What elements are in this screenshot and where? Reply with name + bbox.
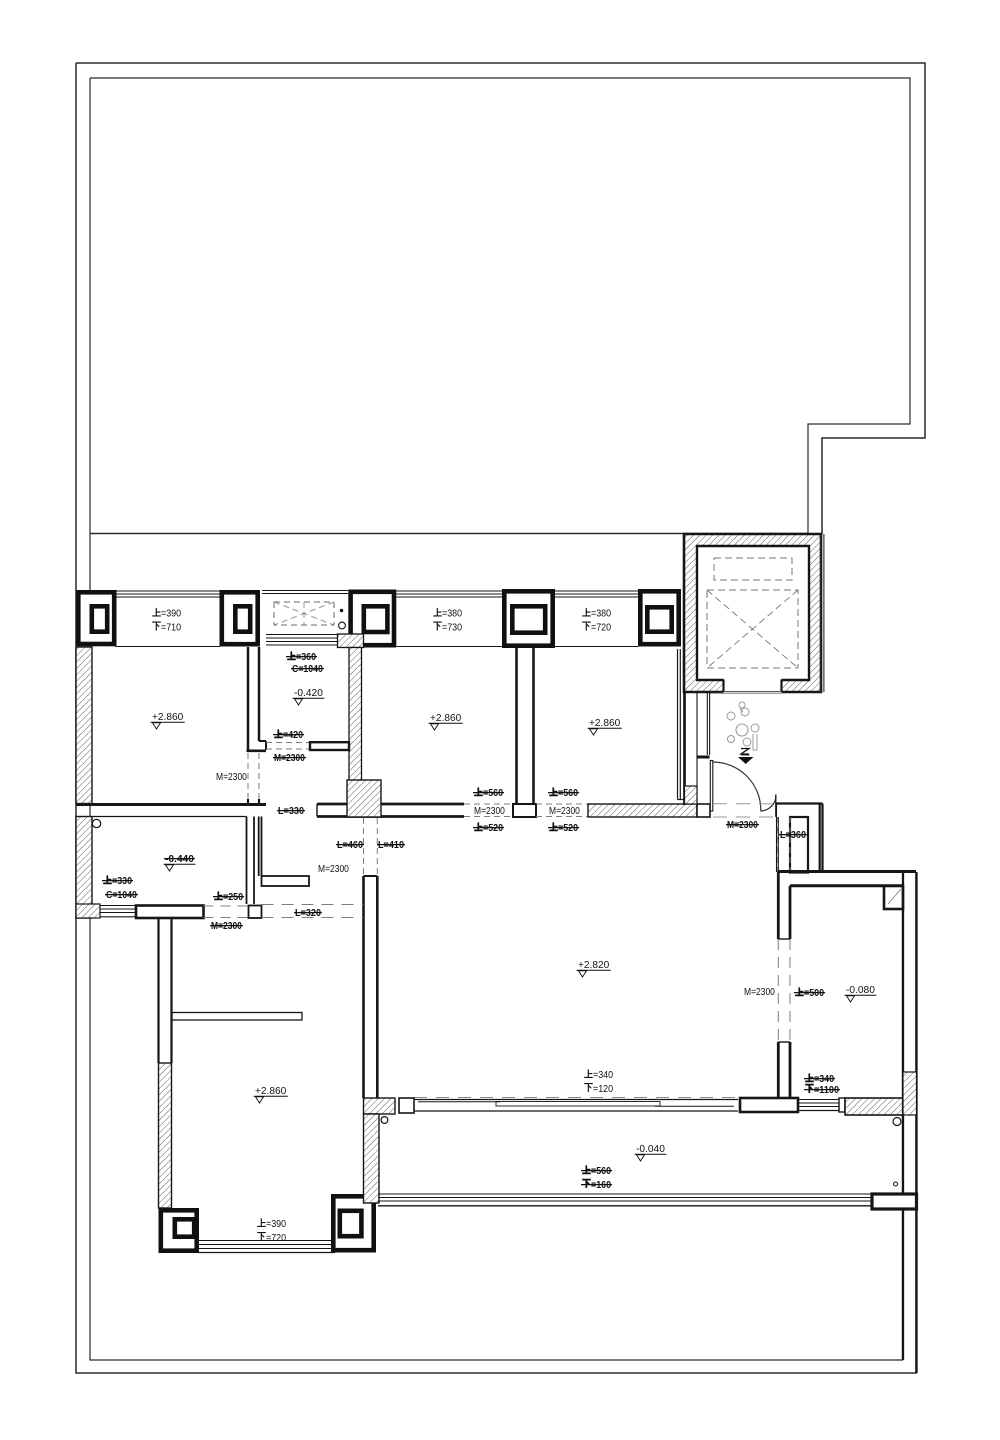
svg-text:=390: =390 (161, 608, 181, 620)
svg-text:=710: =710 (161, 622, 181, 634)
svg-text:M=2300: M=2300 (216, 771, 247, 783)
svg-text:=730: =730 (442, 622, 462, 634)
svg-text:-0.420: -0.420 (294, 687, 323, 699)
svg-text:+2.860: +2.860 (430, 712, 461, 724)
svg-text:+2.860: +2.860 (152, 711, 183, 723)
svg-text:=390: =390 (266, 1218, 286, 1230)
svg-text:M=2300: M=2300 (744, 986, 775, 998)
svg-text:-0.080: -0.080 (846, 984, 875, 996)
svg-text:=380: =380 (442, 608, 462, 620)
svg-text:+2.860: +2.860 (255, 1085, 286, 1097)
svg-text:=720: =720 (591, 622, 611, 634)
svg-text:M=2300: M=2300 (549, 805, 580, 817)
svg-text:M=2300: M=2300 (318, 863, 349, 875)
svg-text:M=2300: M=2300 (474, 805, 505, 817)
svg-text:+2.820: +2.820 (578, 959, 609, 971)
svg-text:=340: =340 (593, 1069, 613, 1081)
svg-text:+2.860: +2.860 (589, 717, 620, 729)
svg-text:=120: =120 (593, 1083, 613, 1095)
svg-text:=720: =720 (266, 1232, 286, 1244)
svg-text:-0.040: -0.040 (636, 1143, 665, 1155)
svg-text:=380: =380 (591, 608, 611, 620)
